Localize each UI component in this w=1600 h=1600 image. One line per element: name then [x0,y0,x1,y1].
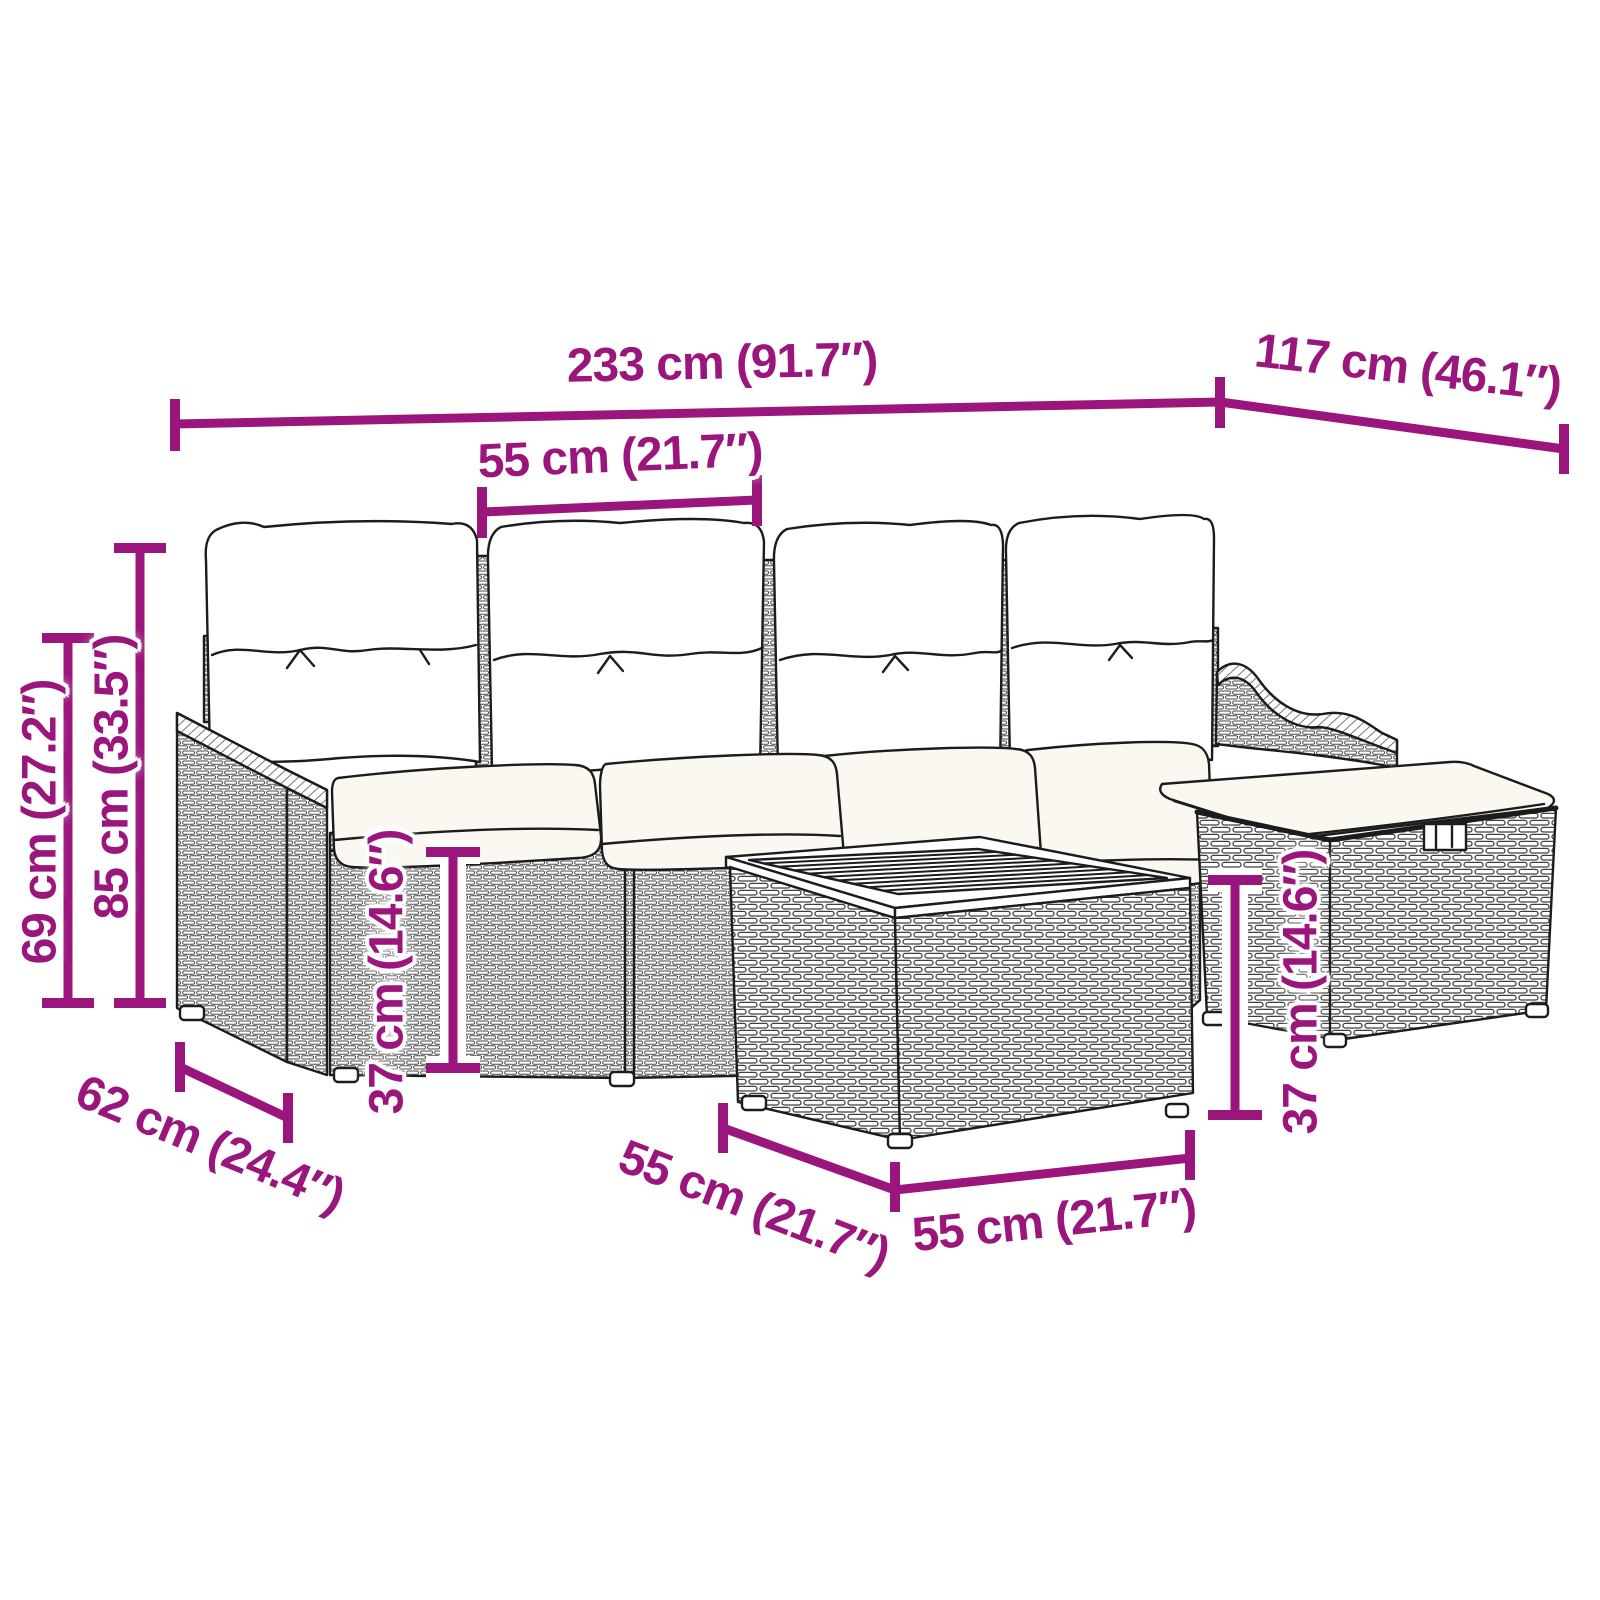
dim-line-table-width [895,1130,1190,1190]
label-seat-height-left: 37 cm (14.6″) [360,830,415,1115]
label-seat-height-right: 37 cm (14.6″) [1274,850,1329,1135]
furniture-illustration [0,0,1600,1600]
dimension-diagram: 233 cm (91.7″) 55 cm (21.7″) 117 cm (46.… [0,0,1600,1600]
label-total-width: 233 cm (91.7″) [566,332,878,393]
back-cushion-1 [206,521,480,762]
back-cushion-4 [1006,515,1214,763]
label-total-height: 85 cm (33.5″) [85,635,140,920]
back-cushion-2 [488,519,764,773]
sofa-back-cushions [206,515,1214,775]
back-cushion-3 [774,521,1003,775]
coffee-table [726,837,1193,1140]
table-body-right [895,888,1193,1140]
dim-line-total-depth [1220,402,1564,474]
sofa-right-armrest [1216,664,1397,768]
ottoman [1160,762,1556,1040]
label-back-height: 69 cm (27.2″) [13,680,68,965]
